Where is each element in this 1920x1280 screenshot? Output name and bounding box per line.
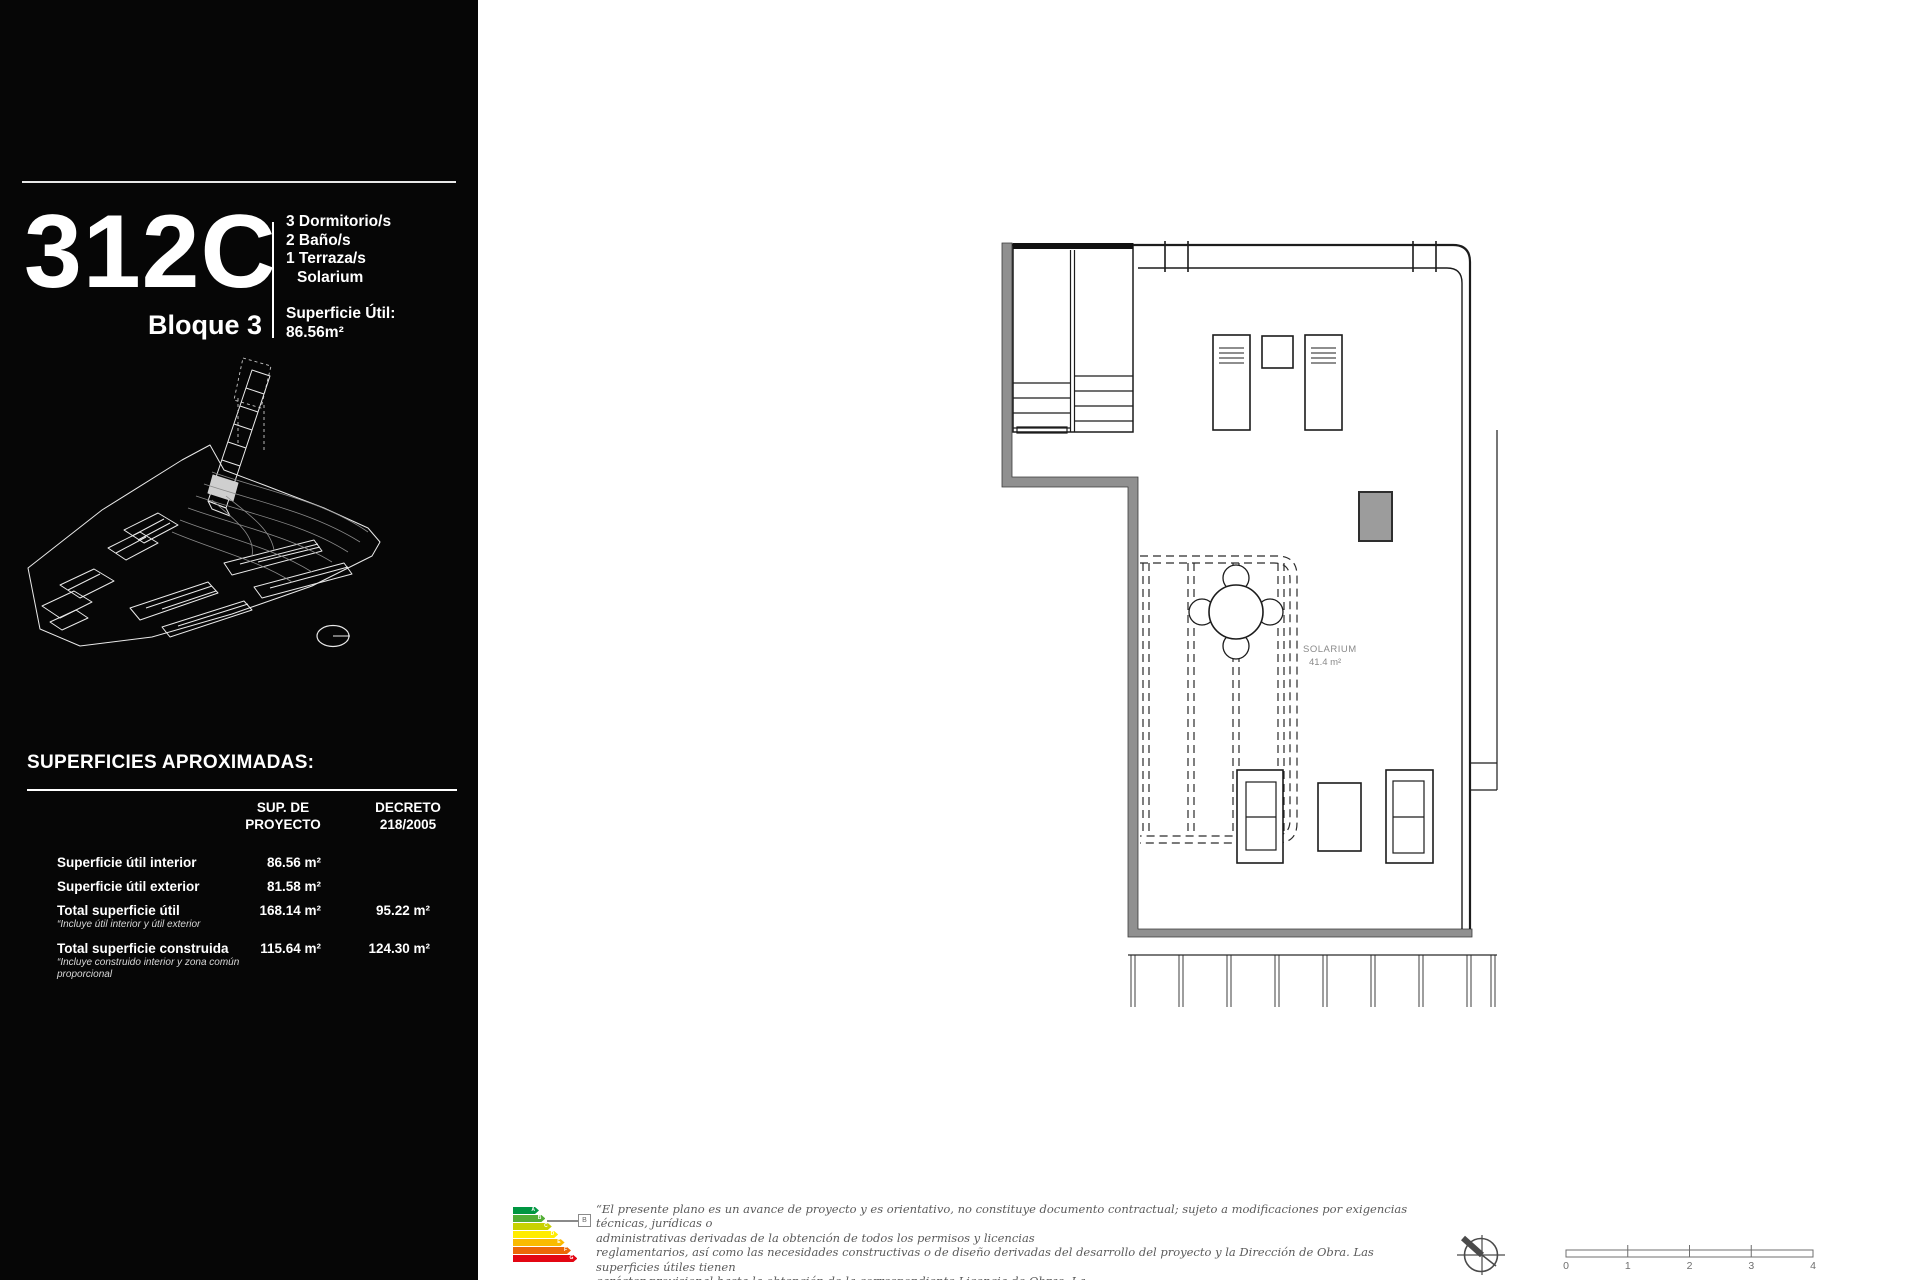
- sun-lounger: [1305, 335, 1342, 430]
- svg-text:SOLARIUM: SOLARIUM: [1303, 644, 1357, 655]
- svg-text:0: 0: [1563, 1260, 1569, 1272]
- energy-bar-d: D: [513, 1231, 558, 1238]
- railing: [1128, 955, 1497, 1007]
- unit-code: 312C: [24, 200, 277, 304]
- feature-terraces: 1 Terraza/s: [286, 250, 391, 269]
- feature-solarium: Solarium: [286, 269, 391, 288]
- energy-bar-c: C: [513, 1223, 552, 1230]
- col-header-proyecto: SUP. DE PROYECTO: [228, 799, 338, 833]
- room-label: SOLARIUM 41.4 m²: [1303, 644, 1357, 668]
- side-wall-notch: [1470, 430, 1497, 790]
- sun-lounger: [1213, 335, 1250, 430]
- left-buildings: [42, 569, 114, 630]
- superficie-util-value: 86.56m²: [286, 324, 344, 342]
- value-decreto: 95.22 m²: [330, 903, 430, 918]
- value-proyecto: 81.58 m²: [221, 879, 321, 894]
- value-proyecto: 86.56 m²: [221, 855, 321, 870]
- energy-bar-a: A: [513, 1207, 539, 1214]
- energy-bar-g: G: [513, 1255, 577, 1262]
- roundabout-ellipse: [317, 626, 350, 647]
- room-area: 41.4 m²: [1309, 657, 1341, 668]
- energy-rating-badge: B: [578, 1214, 591, 1227]
- value-decreto: 124.30 m²: [330, 941, 430, 956]
- staircase: [1013, 243, 1133, 433]
- scale-bar: 0 1 2 3 4: [1558, 1238, 1824, 1278]
- lounge-furniture: [1237, 770, 1433, 863]
- north-arrow-icon: [1455, 1226, 1507, 1280]
- energy-bar-b: B: [513, 1215, 545, 1222]
- feature-bathrooms: 2 Baño/s: [286, 232, 391, 251]
- bottom-buildings: [130, 582, 252, 637]
- energy-bar-e: E: [513, 1239, 565, 1246]
- sun-loungers-top: [1213, 335, 1342, 430]
- dining-set: [1189, 565, 1283, 659]
- site-roads: [172, 472, 368, 582]
- round-table: [1209, 585, 1263, 639]
- equipment-box: [1359, 492, 1392, 541]
- vertical-divider: [272, 222, 274, 338]
- energy-pointer-line: [547, 1220, 578, 1222]
- scale-tick-labels: 0 1 2 3 4: [1563, 1260, 1816, 1272]
- site-plan-illustration: [12, 350, 394, 685]
- floor-plan: SOLARIUM 41.4 m²: [980, 190, 1520, 1030]
- value-proyecto: 115.64 m²: [221, 941, 321, 956]
- table-rule: [27, 789, 457, 791]
- value-proyecto: 168.14 m²: [221, 903, 321, 918]
- col-header-decreto: DECRETO 218/2005: [353, 799, 463, 833]
- surfaces-title: SUPERFICIES APROXIMADAS:: [27, 752, 314, 774]
- block3-building: [208, 370, 270, 516]
- mid-buildings: [108, 513, 178, 560]
- coffee-table: [1318, 783, 1361, 851]
- unit-features: 3 Dormitorio/s 2 Baño/s 1 Terraza/s Sola…: [286, 213, 391, 287]
- divider-line: [22, 181, 456, 183]
- legal-disclaimer: “El presente plano es un avance de proye…: [596, 1202, 1436, 1280]
- energy-bar-f: F: [513, 1247, 571, 1254]
- svg-text:4: 4: [1810, 1260, 1816, 1272]
- svg-text:3: 3: [1748, 1260, 1754, 1272]
- block3-projection-outline: [234, 358, 271, 450]
- svg-text:2: 2: [1687, 1260, 1693, 1272]
- plan-sheet: 312C 3 Dormitorio/s 2 Baño/s 1 Terraza/s…: [0, 0, 1920, 1280]
- info-sidebar: 312C 3 Dormitorio/s 2 Baño/s 1 Terraza/s…: [0, 0, 478, 1280]
- side-table: [1262, 336, 1293, 368]
- superficie-util-label: Superficie Útil:: [286, 305, 395, 323]
- feature-bedrooms: 3 Dormitorio/s: [286, 213, 391, 232]
- block-label: Bloque 3: [100, 310, 262, 341]
- right-buildings: [224, 540, 352, 598]
- svg-text:1: 1: [1625, 1260, 1631, 1272]
